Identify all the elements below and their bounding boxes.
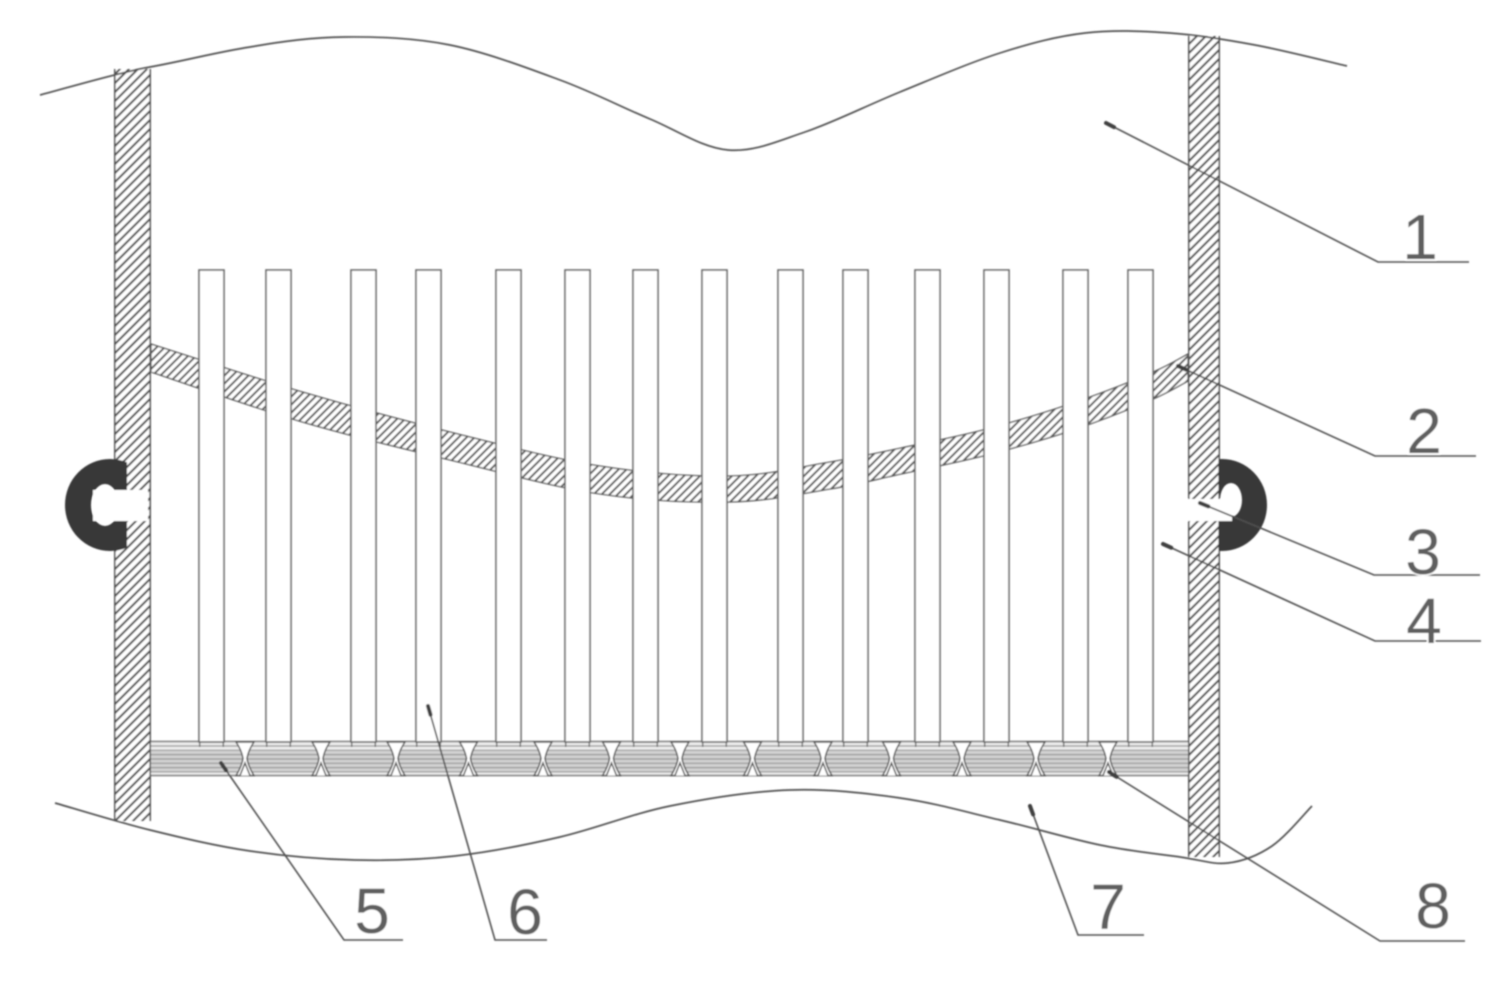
svg-text:2: 2 [1406, 395, 1442, 467]
svg-text:1: 1 [1402, 201, 1438, 273]
svg-text:6: 6 [507, 876, 543, 948]
svg-text:8: 8 [1415, 870, 1451, 942]
svg-text:5: 5 [354, 875, 390, 947]
svg-text:4: 4 [1406, 585, 1442, 657]
svg-text:3: 3 [1405, 516, 1441, 588]
svg-text:7: 7 [1090, 871, 1126, 943]
